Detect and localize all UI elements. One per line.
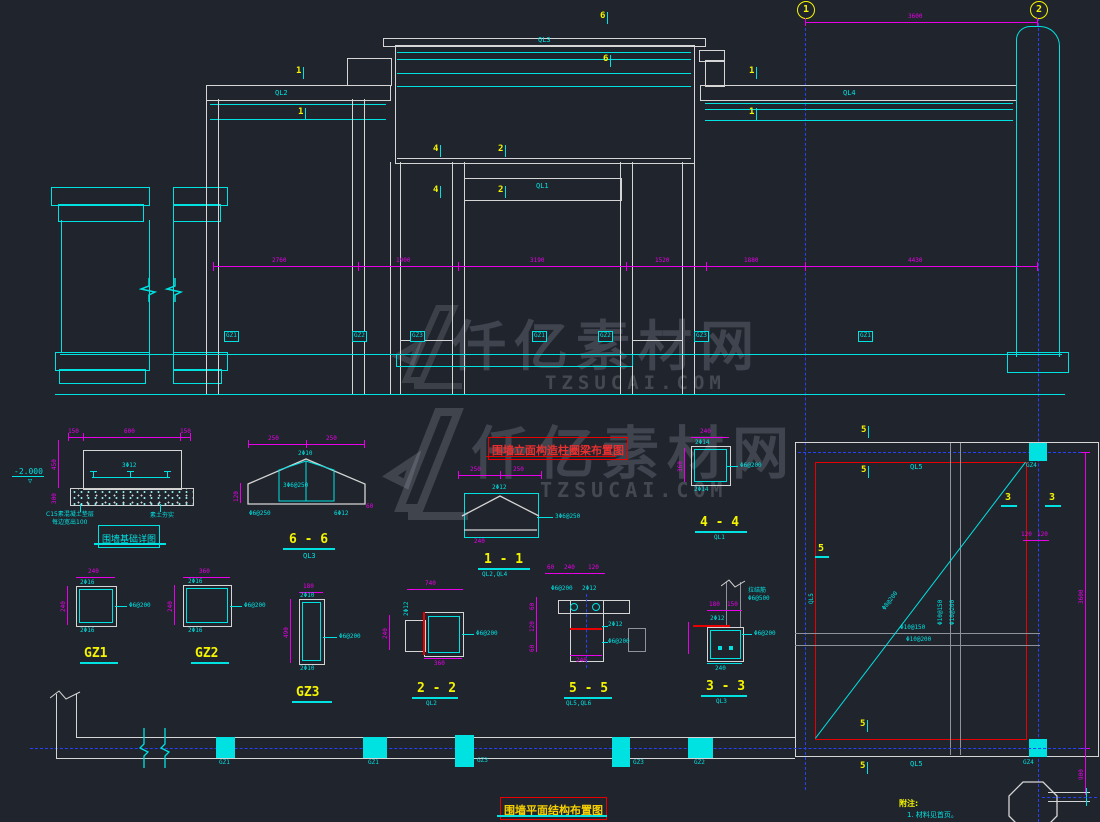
panel-line (397, 158, 691, 159)
rebar-label: 2Φ12 (404, 602, 411, 616)
strip-gz-label: GZ1 (368, 760, 379, 767)
rebar-label: Φ10@200 (950, 600, 957, 625)
dim-tick (306, 440, 307, 448)
section-sub-label: QL5,QL6 (566, 701, 591, 708)
dim-label: 240 (88, 569, 99, 576)
label-underline (283, 548, 335, 550)
side-detail-outline (628, 628, 646, 652)
section-label-2-2: 2 - 2 (417, 682, 456, 695)
dim-line (1023, 540, 1049, 541)
strip-gz-label: GZ1 (219, 760, 230, 767)
section-mark-5: 5 (861, 426, 869, 438)
cut-line (423, 612, 425, 655)
dim-tick (83, 433, 84, 441)
dim-label: 60 (530, 603, 537, 610)
column-section-stirrup (694, 449, 727, 482)
strip-column (688, 738, 713, 758)
rebar-label: 2Φ10 (298, 451, 312, 458)
gate-plan-slab-outline (815, 462, 1027, 740)
label-underline (695, 531, 747, 533)
section-mark-5: 5 (861, 466, 869, 478)
dim-tick (248, 440, 249, 448)
dim-label: 150 (180, 429, 191, 436)
gz4-label: GZ4 (1023, 760, 1034, 767)
dim-tick (541, 471, 542, 479)
label-underline (80, 662, 118, 664)
dim-label: 240 (383, 628, 390, 639)
leader-line (323, 637, 337, 638)
dim-line (707, 610, 742, 611)
dim-label: 300 (52, 493, 59, 504)
beam-line (705, 103, 1013, 104)
stub-line (1048, 801, 1090, 802)
column-line (206, 99, 207, 394)
dim-label: 1900 (396, 258, 410, 265)
rebar-label: 2Φ10 (300, 593, 314, 600)
watermark-site-text: TZSUCAI.COM (545, 372, 726, 394)
strip-gz-label: GZ3 (477, 758, 488, 765)
dim-label: 1520 (655, 258, 669, 265)
level-symbol-icon: ▽ (28, 477, 32, 485)
dim-tick (1037, 18, 1038, 26)
dim-line (76, 577, 115, 578)
section-mark-1: 1 (296, 67, 304, 79)
dim-label: 740 (425, 581, 436, 588)
foundation-note: 素土夯实 (150, 513, 174, 520)
gz-tag: GZ1 (224, 331, 239, 342)
beam-section-stirrup (710, 630, 741, 659)
axis-dimension-line (805, 22, 1038, 23)
notes-heading: 附注: (899, 799, 918, 808)
section-sub-label: QL3 (716, 699, 727, 706)
section-mark-6: 6 (600, 12, 608, 24)
strip-gz-label: GZ3 (633, 760, 644, 767)
tie-bar-note: 拉结筋 (748, 588, 766, 595)
rebar-label: Φ6@200 (740, 463, 762, 470)
beam-ql4-outline (700, 85, 1017, 101)
rebar-label: 2Φ16 (80, 628, 94, 635)
rebar-label: 2Φ12 (492, 485, 506, 492)
strip-column (363, 737, 387, 758)
gate-step (347, 58, 392, 86)
left-wall-cap-band (58, 204, 144, 222)
rebar-label: 2Φ12 (710, 616, 724, 623)
coping-section-shape (460, 492, 541, 534)
rebar-label: Φ10@200 (906, 637, 931, 644)
dim-line (407, 589, 463, 590)
label-underline (412, 697, 458, 699)
dim-tick (1081, 452, 1090, 453)
section-mark-2: 2 (498, 186, 506, 198)
gz4-label: GZ4 (1026, 463, 1037, 470)
leader-line (115, 606, 127, 607)
section-sub-label: QL2,QL4 (482, 572, 507, 579)
section-sub-label: QL3 (303, 552, 316, 560)
dim-tick (213, 262, 214, 271)
dim-label: 250 (268, 436, 279, 443)
foundation-note: C15素混凝土垫层 (46, 512, 94, 519)
dim-tick (626, 262, 627, 271)
dim-label: 360 (199, 569, 210, 576)
dim-label: 120 (530, 621, 537, 632)
rebar-label: Φ6@200 (129, 603, 151, 610)
dim-label: 180 (709, 602, 720, 609)
beam-ql5-label: QL5 (910, 760, 923, 768)
column-line (400, 162, 401, 394)
foundation-note: 每边宽出100 (52, 520, 87, 527)
section-mark-5: 5 (818, 544, 824, 554)
footing-step-line (632, 354, 633, 366)
column-line (620, 162, 621, 394)
label-underline (478, 568, 530, 570)
foundation-bottom-line (55, 394, 1065, 395)
strip-column (455, 735, 474, 767)
label-underline (701, 695, 747, 697)
title-underline (486, 456, 616, 457)
beam-ql3-label: QL3 (538, 36, 551, 44)
plan-column-gz4 (1029, 443, 1047, 461)
rebar-label: 2Φ16 (80, 580, 94, 587)
section-label-3-3: 3 - 3 (706, 680, 745, 693)
section-label-1-1: 1 - 1 (484, 553, 523, 566)
rebar-label: Φ6@250 (249, 511, 271, 518)
dim-label: 900 (1079, 769, 1086, 780)
beam-line (210, 104, 386, 105)
rebar-label: 3Φ6@250 (283, 483, 308, 490)
section-mark-5: 5 (860, 762, 868, 774)
section-mark-6: 6 (603, 55, 611, 67)
ground-line (60, 354, 1062, 355)
gz-tag: GZ2 (352, 331, 367, 342)
dim-tick (706, 262, 707, 271)
rebar-dot (729, 646, 733, 650)
plan-wall-line (795, 645, 1040, 646)
rebar-label: Φ6@200 (476, 631, 498, 638)
title-underline (94, 543, 166, 545)
dim-label: 600 (124, 429, 135, 436)
dim-line (545, 573, 605, 574)
leader-line (160, 504, 161, 512)
section-mark-2: 2 (498, 145, 506, 157)
section-label-gz1: GZ1 (84, 647, 107, 660)
dim-label: 180 (303, 584, 314, 591)
section-mark-1: 1 (298, 108, 306, 120)
footing-step-line (396, 366, 632, 367)
leader-line (726, 466, 738, 467)
label-underline (191, 662, 229, 664)
column-line (218, 99, 219, 394)
rebar-label: Φ6@200 (754, 631, 776, 638)
panel-line (397, 86, 691, 87)
mark-underline (1045, 505, 1061, 507)
panel-line (397, 52, 691, 53)
column-line (352, 99, 353, 394)
column-section-stirrup (302, 602, 321, 661)
section-label-gz2: GZ2 (195, 647, 218, 660)
section-label-6-6: 6 - 6 (289, 533, 328, 546)
dim-label: 120 (234, 491, 241, 502)
rebar-dot (718, 646, 722, 650)
column-line (464, 162, 465, 394)
dim-label: 240 (576, 658, 587, 665)
gate-pier-base (1007, 352, 1069, 373)
rebar-label: Φ6@200 (244, 603, 266, 610)
tie-bar-note: Φ6@500 (748, 596, 770, 603)
column-line (364, 99, 365, 394)
rebar-label: Φ6@200 (339, 634, 361, 641)
label-underline (292, 701, 332, 703)
dim-label: 240 (168, 601, 175, 612)
dim-label: 2760 (272, 258, 286, 265)
gz-tag: GZ3 (694, 331, 709, 342)
beam-ql5-label: QL5 (809, 593, 816, 604)
dim-label: 250 (470, 467, 481, 474)
section-mark-4: 4 (433, 145, 441, 157)
section-sub-label: QL2 (426, 701, 437, 708)
rebar-line (92, 477, 170, 478)
dim-label: 3600 (1079, 590, 1086, 604)
footing-step-line (396, 354, 397, 366)
rebar-ring-icon (592, 603, 600, 611)
dim-tick (1037, 262, 1038, 271)
dim-tick (500, 471, 501, 479)
rebar-label: 2Φ12 (582, 586, 596, 593)
plan-wall-line (795, 633, 1040, 634)
dim-label: 60 (547, 565, 554, 572)
leader-line (742, 634, 752, 635)
dim-label: 240 (61, 601, 68, 612)
foundation-footing-hatch (70, 488, 194, 506)
dim-label: 250 (513, 467, 524, 474)
strip-centerline (30, 748, 1086, 749)
label-underline (564, 697, 612, 699)
dim-label: 3190 (530, 258, 544, 265)
strip-gz-label: GZ2 (694, 760, 705, 767)
left-wall-footing-band (59, 369, 146, 384)
cad-drawing-canvas: 仟亿素材网 TZSUCAI.COM 仟亿素材网 TZSUCAI.COM 1 2 … (0, 0, 1100, 822)
break-mark-icon (139, 728, 149, 768)
rebar-hook (164, 471, 171, 472)
stub-line (1048, 792, 1090, 793)
column-line (452, 162, 453, 394)
dim-label: 150 (727, 602, 738, 609)
strip-wall-line (56, 694, 57, 759)
section-mark-3: 3 (1049, 493, 1055, 503)
strip-column (216, 737, 235, 758)
rebar-label: 2Φ16 (188, 628, 202, 635)
dim-line (570, 655, 602, 656)
beam-ql1-label: QL1 (536, 182, 549, 190)
mark-underline (1001, 505, 1017, 507)
rebar-hook (127, 471, 134, 472)
dim-line (707, 663, 742, 664)
dim-label: 1880 (744, 258, 758, 265)
dim-tick (458, 262, 459, 271)
coping-section-shape (245, 454, 370, 508)
section-label-gz3: GZ3 (296, 686, 319, 699)
dim-tick (805, 262, 806, 271)
leader-line (462, 634, 474, 635)
rebar-label: 2Φ10 (300, 666, 314, 673)
leader-line (537, 517, 553, 518)
rebar-label: 2Φ14 (694, 487, 708, 494)
section-mark-1: 1 (749, 108, 757, 120)
gz-tag: GZ1 (858, 331, 873, 342)
mark-underline (815, 556, 829, 558)
break-mark-icon (721, 574, 746, 585)
gz-tag: GZ1 (532, 331, 547, 342)
section-mark-4: 4 (433, 186, 441, 198)
dim-label: 150 (68, 429, 79, 436)
dim-label: 240 (700, 429, 711, 436)
dim-label: 360 (678, 461, 685, 472)
beam-section-stirrup (428, 616, 460, 653)
axis-dimension-label: 3600 (908, 14, 922, 21)
foundation-stem (83, 450, 182, 490)
dim-label: 60 (366, 504, 373, 511)
gz-tag: GZ2 (598, 331, 613, 342)
strip-column (612, 737, 630, 767)
rebar-label: 3Φ6@250 (555, 514, 580, 521)
dim-label: 4430 (908, 258, 922, 265)
plan-wall-line (960, 443, 961, 755)
dim-line (68, 437, 191, 438)
section-label-4-4: 4 - 4 (700, 516, 739, 529)
gate-step (705, 60, 725, 87)
dim-tick (458, 471, 459, 479)
dim-label: 250 (326, 436, 337, 443)
rebar-label: Φ6@200 (551, 586, 573, 593)
octagonal-pier-plan (1003, 776, 1065, 822)
dim-label: 120 (1021, 532, 1032, 539)
beam-ql5-label: QL5 (910, 463, 923, 471)
break-mark-icon (139, 278, 185, 302)
title-underline (497, 815, 607, 817)
left-wall-cap-band (173, 204, 221, 222)
gz-tag: GZ3 (410, 331, 425, 342)
stub-centerline (1042, 797, 1097, 798)
dim-line (691, 437, 729, 438)
dim-label: 120 (588, 565, 599, 572)
dim-label: 450 (52, 459, 59, 470)
panel-bottom-line (632, 340, 682, 341)
column-line (682, 162, 683, 394)
dim-label: 240 (715, 666, 726, 673)
axis-bubble-2: 2 (1030, 1, 1048, 19)
rebar-label: Φ6@200 (608, 639, 630, 646)
section-mark-1: 1 (749, 67, 757, 79)
rebar-label: Φ10@150 (938, 600, 945, 625)
dim-label: 120 (1037, 532, 1048, 539)
dim-label: 360 (434, 661, 445, 668)
rebar-label: 6Φ12 (334, 511, 348, 518)
section-sub-label: QL1 (714, 535, 725, 542)
left-wall-footing-band (173, 369, 222, 384)
panel-bottom-line (400, 340, 452, 341)
column-section-stirrup (186, 588, 228, 623)
dim-tick (364, 440, 365, 448)
gate-pier-outline (1016, 26, 1060, 357)
rebar-label: 2Φ14 (695, 440, 709, 447)
panel-line (397, 73, 691, 74)
rebar-label: 2Φ12 (608, 622, 622, 629)
leader-line (230, 606, 242, 607)
dim-label: 240 (564, 565, 575, 572)
column-line (390, 162, 391, 394)
axis-bubble-1: 1 (797, 1, 815, 19)
rebar-label: 2Φ16 (188, 579, 202, 586)
rebar-label: 3Φ12 (122, 463, 136, 470)
section-label-5-5: 5 - 5 (569, 682, 608, 695)
notes-line: 1. 材料见首页。 (907, 811, 958, 819)
dim-label: 60 (530, 645, 537, 652)
break-mark-icon (160, 728, 170, 768)
beam-ql4-label: QL4 (843, 89, 856, 97)
break-mark-icon (50, 686, 82, 698)
level-label: -2.000 (14, 467, 43, 476)
section-mark-3: 3 (1005, 493, 1011, 503)
beam-line (705, 120, 1013, 121)
rebar-hook (90, 471, 97, 472)
column-section-stirrup (79, 589, 113, 623)
rebar-label: Φ10@150 (900, 625, 925, 632)
dim-label: 490 (284, 627, 291, 638)
dim-label: 240 (474, 539, 485, 546)
beam-ql2-label: QL2 (275, 89, 288, 97)
dim-line (688, 622, 689, 654)
rebar-ring-icon (570, 603, 578, 611)
section-mark-5: 5 (860, 720, 868, 732)
panel-line (397, 59, 691, 60)
column-line (694, 162, 695, 394)
dim-line (424, 658, 462, 659)
dim-tick (805, 18, 806, 26)
left-wall-edge (61, 220, 62, 353)
dim-tick (358, 262, 359, 271)
